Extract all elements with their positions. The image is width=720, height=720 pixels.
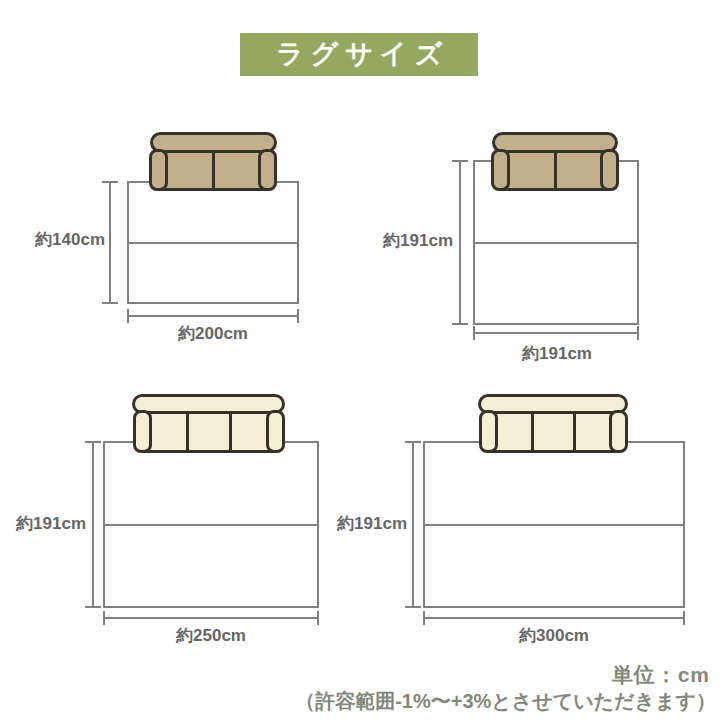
- rug-fold-line: [105, 524, 317, 526]
- height-dimension-label: 約191cm: [375, 232, 453, 250]
- height-dimension-line: [459, 160, 461, 325]
- rug-fold-line: [425, 524, 683, 526]
- sofa-armrest-right: [266, 410, 285, 453]
- sofa-cushion-divider: [573, 414, 576, 450]
- width-dimension-label: 約250cm: [161, 627, 261, 645]
- width-dimension-label: 約200cm: [163, 325, 263, 343]
- tolerance-note: （許容範囲-1%〜+3%とさせていただきます）: [295, 688, 716, 715]
- sofa-armrest-right: [258, 149, 277, 191]
- title-banner-label: ラグサイズ: [276, 41, 449, 68]
- sofa-seat: [142, 411, 276, 453]
- width-dimension-line: [473, 332, 639, 334]
- height-dimension-line: [109, 181, 111, 304]
- sofa-armrest-left: [133, 410, 152, 453]
- sofa-cushion-divider: [186, 414, 189, 450]
- height-dimension-label: 約140cm: [27, 231, 105, 249]
- sofa-cushion-divider: [531, 414, 534, 450]
- sofa-cushion-divider: [212, 153, 215, 188]
- width-dimension-label: 約191cm: [507, 345, 607, 363]
- width-dimension-line: [423, 617, 685, 619]
- width-dimension-line: [127, 315, 299, 317]
- title-banner: ラグサイズ: [240, 33, 478, 76]
- sofa-armrest-right: [609, 410, 628, 453]
- height-dimension-line: [92, 441, 94, 608]
- sofa-seat: [500, 150, 610, 191]
- sofa-armrest-left: [149, 149, 168, 191]
- sofa-cushion-divider: [229, 414, 232, 450]
- rug-outline: [127, 181, 299, 304]
- height-dimension-label: 約191cm: [329, 515, 407, 533]
- sofa-armrest-left: [479, 410, 498, 453]
- height-dimension-line: [412, 441, 414, 608]
- width-dimension-label: 約300cm: [504, 627, 604, 645]
- sofa-seat: [488, 411, 619, 453]
- sofa-seat: [158, 150, 268, 191]
- rug-outline: [103, 441, 319, 608]
- rug-fold-line: [129, 242, 297, 244]
- unit-note: 単位：cm: [612, 661, 710, 689]
- sofa-armrest-right: [600, 149, 619, 191]
- rug-fold-line: [475, 242, 637, 244]
- sofa-cushion-divider: [554, 153, 557, 188]
- rug-outline: [423, 441, 685, 608]
- sofa-armrest-left: [491, 149, 510, 191]
- height-dimension-label: 約191cm: [8, 515, 86, 533]
- width-dimension-line: [103, 617, 319, 619]
